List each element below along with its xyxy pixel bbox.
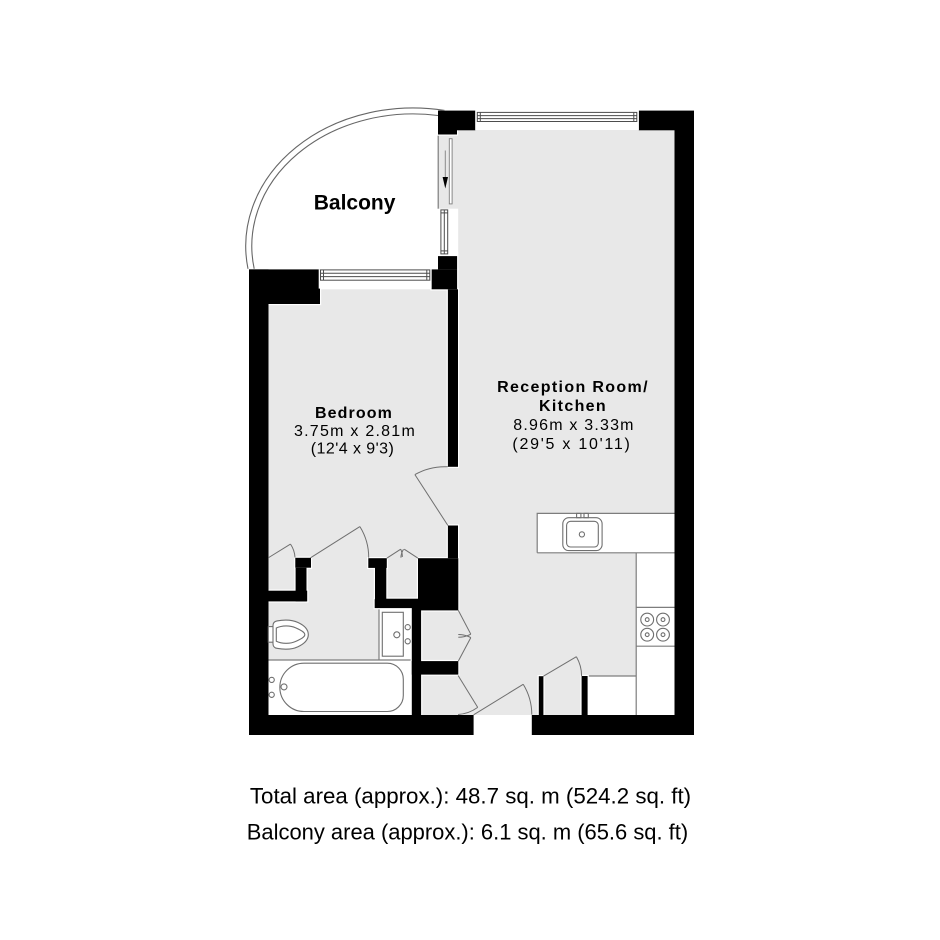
svg-text:(12'4 x 9'3): (12'4 x 9'3) [311,441,395,458]
svg-text:Balcony: Balcony [314,192,396,215]
svg-text:3.75m x 2.81m: 3.75m x 2.81m [294,423,416,440]
svg-text:Balcony area (approx.): 6.1 sq: Balcony area (approx.): 6.1 sq. m (65.6 … [247,820,688,845]
svg-text:8.96m x 3.33m: 8.96m x 3.33m [513,417,634,434]
svg-text:(29'5 x 10'11): (29'5 x 10'11) [512,436,631,453]
svg-text:Kitchen: Kitchen [539,398,607,415]
svg-text:Reception Room/: Reception Room/ [497,379,649,396]
svg-text:Total area (approx.): 48.7 sq.: Total area (approx.): 48.7 sq. m (524.2 … [250,784,691,809]
svg-text:Bedroom: Bedroom [315,405,393,422]
